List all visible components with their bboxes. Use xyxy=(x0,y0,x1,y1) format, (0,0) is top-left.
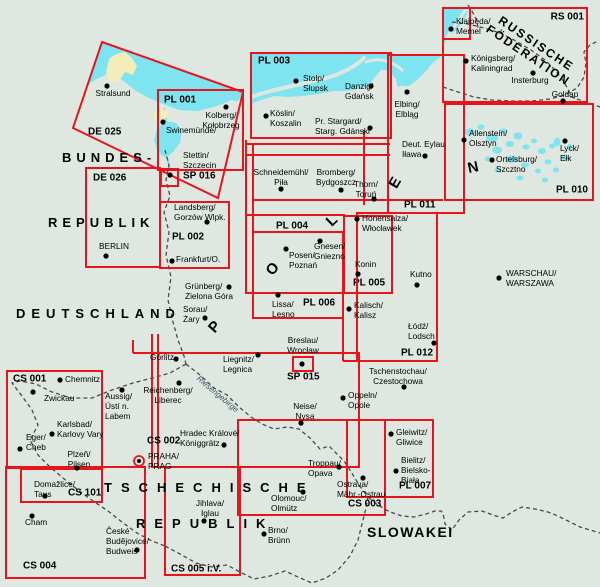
city-label: Brno/Brünn xyxy=(268,525,291,545)
city-dot xyxy=(463,58,468,63)
lake xyxy=(538,148,546,154)
city-label: Frankfurt/O. xyxy=(176,254,220,264)
city-dot xyxy=(496,275,501,280)
lake xyxy=(517,176,524,181)
city-dot xyxy=(404,89,409,94)
city-koenigsberg: Königsberg/Kaliningrad xyxy=(463,53,516,73)
city-warschau: WARSCHAU/WARSZAWA xyxy=(496,268,557,288)
city-dot xyxy=(461,137,466,142)
city-dot xyxy=(414,282,419,287)
city-dot xyxy=(49,431,54,436)
city-dot xyxy=(275,292,280,297)
city-label: Aussig/Ústí n.Labem xyxy=(105,391,133,421)
city-thorn: Thorn/Toruń xyxy=(354,179,379,201)
city-plzen: Plzeň/Pilsen xyxy=(67,449,91,470)
city-dot xyxy=(293,78,298,83)
city-label: Gnesen/Gniezno xyxy=(314,241,346,261)
city-dot xyxy=(223,104,228,109)
city-label: Bromberg/Bydgoszcz xyxy=(316,167,356,187)
city-dot xyxy=(30,389,35,394)
sheet-code-label: SP 015 xyxy=(287,371,320,382)
city-dot xyxy=(201,518,206,523)
sheet-code-label: CS 002 xyxy=(147,435,181,446)
city-dot xyxy=(167,172,172,177)
city-danzig: Danzig/Gdańsk xyxy=(345,81,374,101)
city-dot xyxy=(103,253,108,258)
city-aussig: Aussig/Ústí n.Labem xyxy=(105,387,133,421)
city-dot xyxy=(263,113,268,118)
region-label: REPUBLIK xyxy=(48,215,154,230)
map-canvas: PL 003PL 011PL 010RS 001PL 001DE 026PL 0… xyxy=(0,0,600,587)
sheet-code-label: PL 002 xyxy=(172,231,204,242)
sheet-code-label: RS 001 xyxy=(551,11,585,22)
sheet-code-label: CS 004 xyxy=(23,560,57,571)
lake xyxy=(535,169,541,174)
sheet-code-label: DE 025 xyxy=(88,126,122,137)
city-dot xyxy=(202,315,207,320)
sheet-code-label: PL 003 xyxy=(258,55,290,66)
city-label: Cham xyxy=(25,517,47,527)
city-label: Kutno xyxy=(410,269,432,279)
city-gnesen: Gnesen/Gniezno xyxy=(314,238,346,261)
sheet-code-label: PL 011 xyxy=(404,199,436,210)
sheet-code-label: PL 004 xyxy=(276,220,308,231)
city-dot xyxy=(57,377,62,382)
region-label: BUNDES- xyxy=(62,150,156,165)
city-label: Neise/Nysa xyxy=(293,401,317,421)
city-dot xyxy=(17,446,22,451)
city-dot xyxy=(221,442,226,447)
sheet-code-label: CS 003 xyxy=(348,498,382,509)
city-dot xyxy=(340,395,345,400)
city-label: Konin xyxy=(355,259,377,269)
lake xyxy=(514,133,523,140)
city-label: Plzeň/Pilsen xyxy=(67,449,91,469)
city-label: Kolberg/Kołobrzeg xyxy=(202,110,240,130)
city-label: BERLIN xyxy=(99,241,129,251)
city-dot xyxy=(448,26,453,31)
sheet-code-label: PL 010 xyxy=(556,184,588,195)
city-label: Breslau/Wrocław xyxy=(287,335,320,355)
sheet-code-label: CS 001 xyxy=(13,373,47,384)
lake xyxy=(542,178,548,183)
city-label: Stralsund xyxy=(95,88,130,98)
city-label: Görlitz xyxy=(150,352,174,362)
lake xyxy=(545,160,552,165)
city-dot xyxy=(388,431,393,436)
city-tschenstochau: Tschenstochau/Czestochowa xyxy=(369,366,427,389)
city-dot xyxy=(160,119,165,124)
sheet-code-label: CS 005 i.V. xyxy=(171,563,221,574)
city-dot xyxy=(346,306,351,311)
city-dot xyxy=(338,187,343,192)
city-dot xyxy=(354,216,359,221)
city-label: Danzig/Gdańsk xyxy=(345,81,374,101)
city-dot xyxy=(393,468,398,473)
city-label: Lissa/Lesno xyxy=(272,299,295,319)
city-label: Elbing/Elbląg xyxy=(394,99,420,119)
region-label: SLOWAKEI xyxy=(367,524,454,540)
city-label: Tschenstochau/Czestochowa xyxy=(369,366,427,386)
lake xyxy=(531,139,537,144)
city-dot xyxy=(283,246,288,251)
lake xyxy=(523,145,530,150)
city-dot xyxy=(299,361,304,366)
city-label: Liegnitz/Legnica xyxy=(223,354,255,374)
praha-dot xyxy=(137,459,141,463)
sheet-code-label: PL 012 xyxy=(401,347,433,358)
sheet-code-label: SP 016 xyxy=(183,170,216,181)
city-dot xyxy=(173,356,178,361)
sheet-code-label: DE 026 xyxy=(93,172,127,183)
city-dot xyxy=(226,284,231,289)
city-posen: Posen/Poznań xyxy=(283,246,317,270)
city-label: Chemnitz xyxy=(65,374,100,384)
city-dot xyxy=(489,157,494,162)
city-frankfurt-o: Frankfurt/O. xyxy=(169,254,220,264)
city-hohensalza: Hohensalza/Włocławek xyxy=(354,213,408,233)
region-label: DEUTSCHLAND xyxy=(16,306,181,321)
city-label: Thorn/Toruń xyxy=(354,179,379,199)
city-label: WARSCHAU/WARSZAWA xyxy=(506,268,557,288)
city-label: Eger/Cheb xyxy=(26,432,47,452)
city-label: Königsberg/Kaliningrad xyxy=(471,53,516,73)
city-dot xyxy=(355,271,360,276)
city-label: Goldap xyxy=(552,89,579,99)
city-dot xyxy=(255,352,260,357)
map-sheet-index: PL 003PL 011PL 010RS 001PL 001DE 026PL 0… xyxy=(0,0,600,587)
lake xyxy=(553,168,559,173)
city-dot xyxy=(169,258,174,263)
sheet-code-label: PL 006 xyxy=(303,297,335,308)
lake xyxy=(506,141,514,147)
city-label: Insterburg xyxy=(511,75,549,85)
city-label: Zwickau xyxy=(44,393,75,403)
city-dot xyxy=(261,531,266,536)
sheet-code-label: PL 001 xyxy=(164,94,196,105)
city-dot xyxy=(422,153,427,158)
